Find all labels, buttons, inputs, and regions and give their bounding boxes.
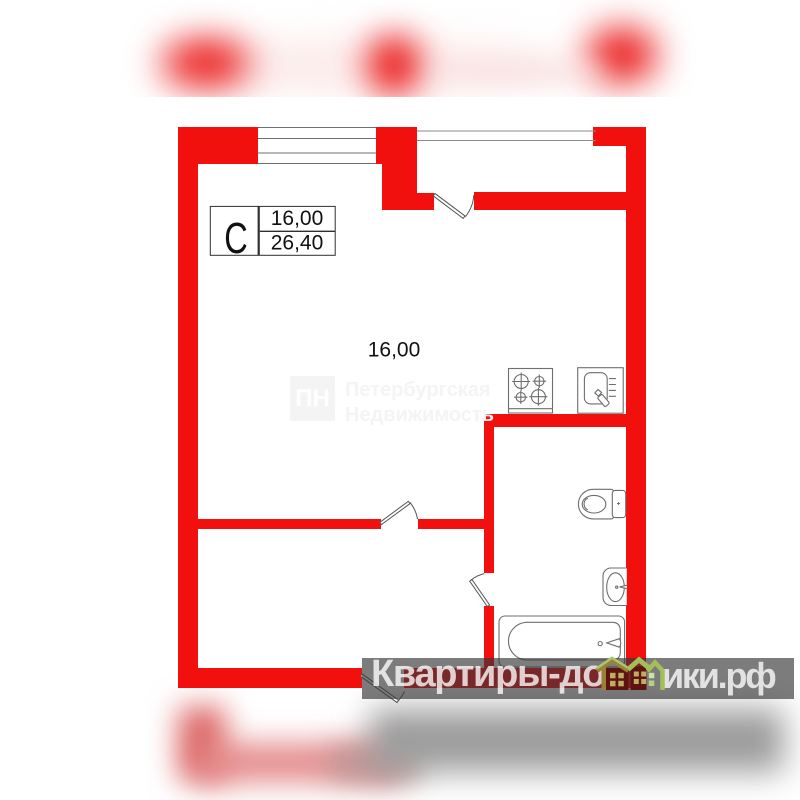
svg-text:16,00: 16,00 bbox=[368, 339, 421, 362]
svg-text:16,00: 16,00 bbox=[271, 207, 324, 230]
svg-text:26,40: 26,40 bbox=[271, 231, 324, 254]
svg-text:С: С bbox=[224, 214, 248, 263]
